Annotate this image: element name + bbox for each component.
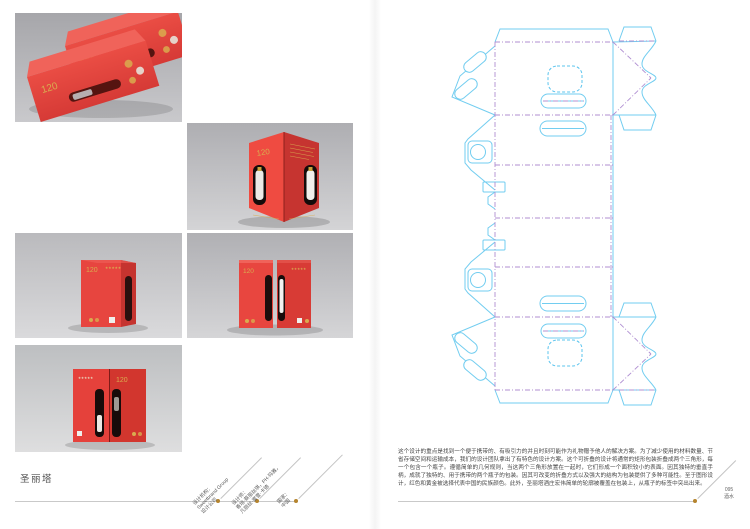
seal-mark (138, 432, 142, 436)
photo-box-pair-open: 120 ★★★★★ (187, 233, 353, 338)
page-number: 095 (724, 487, 734, 494)
seal-mark (95, 318, 99, 322)
gold-dot (693, 499, 697, 503)
credit-value: 香培·蔡丽丝琪，PH·玛雅， (235, 464, 282, 511)
bottle-cap (258, 167, 262, 171)
bottle-cap (309, 167, 313, 171)
label-mark (77, 431, 82, 436)
photo-flat-packs: 120 120 (15, 13, 182, 122)
bottle-label (256, 170, 264, 200)
photo-standing-pack: 120 (187, 123, 353, 230)
section-label: 酒水 (724, 494, 734, 501)
bottle-label (114, 397, 119, 411)
credit-designers: 设计师： 香培·蔡丽丝琪，PH·玛雅， 凡丽丝·蜜雪·卡德 (231, 460, 287, 516)
page-label: 095 酒水 (724, 487, 734, 500)
description-text: 这个设计的重点是找到一个便于携带的、有吸引力的并且时刻可能作为礼物赠予他人的解决… (398, 448, 713, 488)
window-cutout (265, 275, 272, 321)
brand-mark: 120 (116, 377, 128, 384)
page-gutter (369, 0, 381, 529)
seal-mark (245, 319, 249, 323)
window-cutout (125, 276, 132, 321)
project-title: 圣丽塔 (20, 471, 53, 485)
dieline-drawing (430, 22, 700, 446)
credit-leader-line (298, 454, 343, 499)
dieline-cut-lines (452, 27, 656, 405)
seal-mark (251, 319, 255, 323)
bottle (280, 279, 284, 313)
bottle-label (97, 415, 102, 432)
seal-mark (305, 319, 309, 323)
credit-country: 国家： 中国 (276, 490, 295, 509)
credit-agency: 设计机构： Sweetbrand Group 设计公司 (192, 473, 235, 516)
book-spread: 120 120 120 (0, 0, 750, 529)
stars: ★★★★★ (291, 267, 306, 271)
box-top (277, 260, 311, 263)
photo-single-box: 120 ★★★★★ (15, 233, 182, 338)
brand-mark: 120 (243, 268, 254, 275)
photo-box-pair-front: ★★★★★ 120 (15, 345, 182, 452)
seal-mark (89, 318, 93, 322)
seal-mark (132, 432, 136, 436)
stars: ★★★★★ (105, 266, 121, 270)
label-mark (109, 317, 115, 323)
footer-rule-right (398, 501, 695, 502)
brand-mark: 120 (86, 267, 98, 274)
box-top (239, 260, 273, 263)
window-cutout (112, 389, 121, 437)
bottle-label (307, 170, 315, 200)
label-mark (297, 318, 302, 323)
stars: ★★★★★ (78, 376, 93, 380)
